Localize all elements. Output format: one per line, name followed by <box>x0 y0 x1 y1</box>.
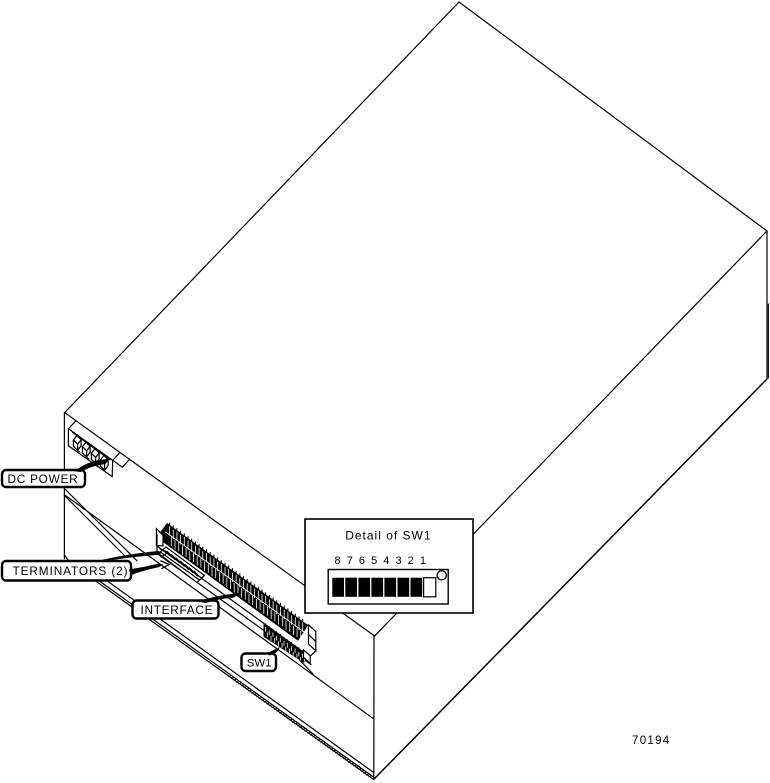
svg-text:87654321: 87654321 <box>335 555 433 567</box>
svg-text:DC POWER: DC POWER <box>8 472 79 486</box>
svg-text:TERMINATORS (2): TERMINATORS (2) <box>13 564 129 578</box>
svg-text:Detail of SW1: Detail of SW1 <box>345 528 431 542</box>
svg-text:SW1: SW1 <box>247 658 272 670</box>
svg-text:INTERFACE: INTERFACE <box>141 603 214 617</box>
svg-text:70194: 70194 <box>632 735 670 747</box>
